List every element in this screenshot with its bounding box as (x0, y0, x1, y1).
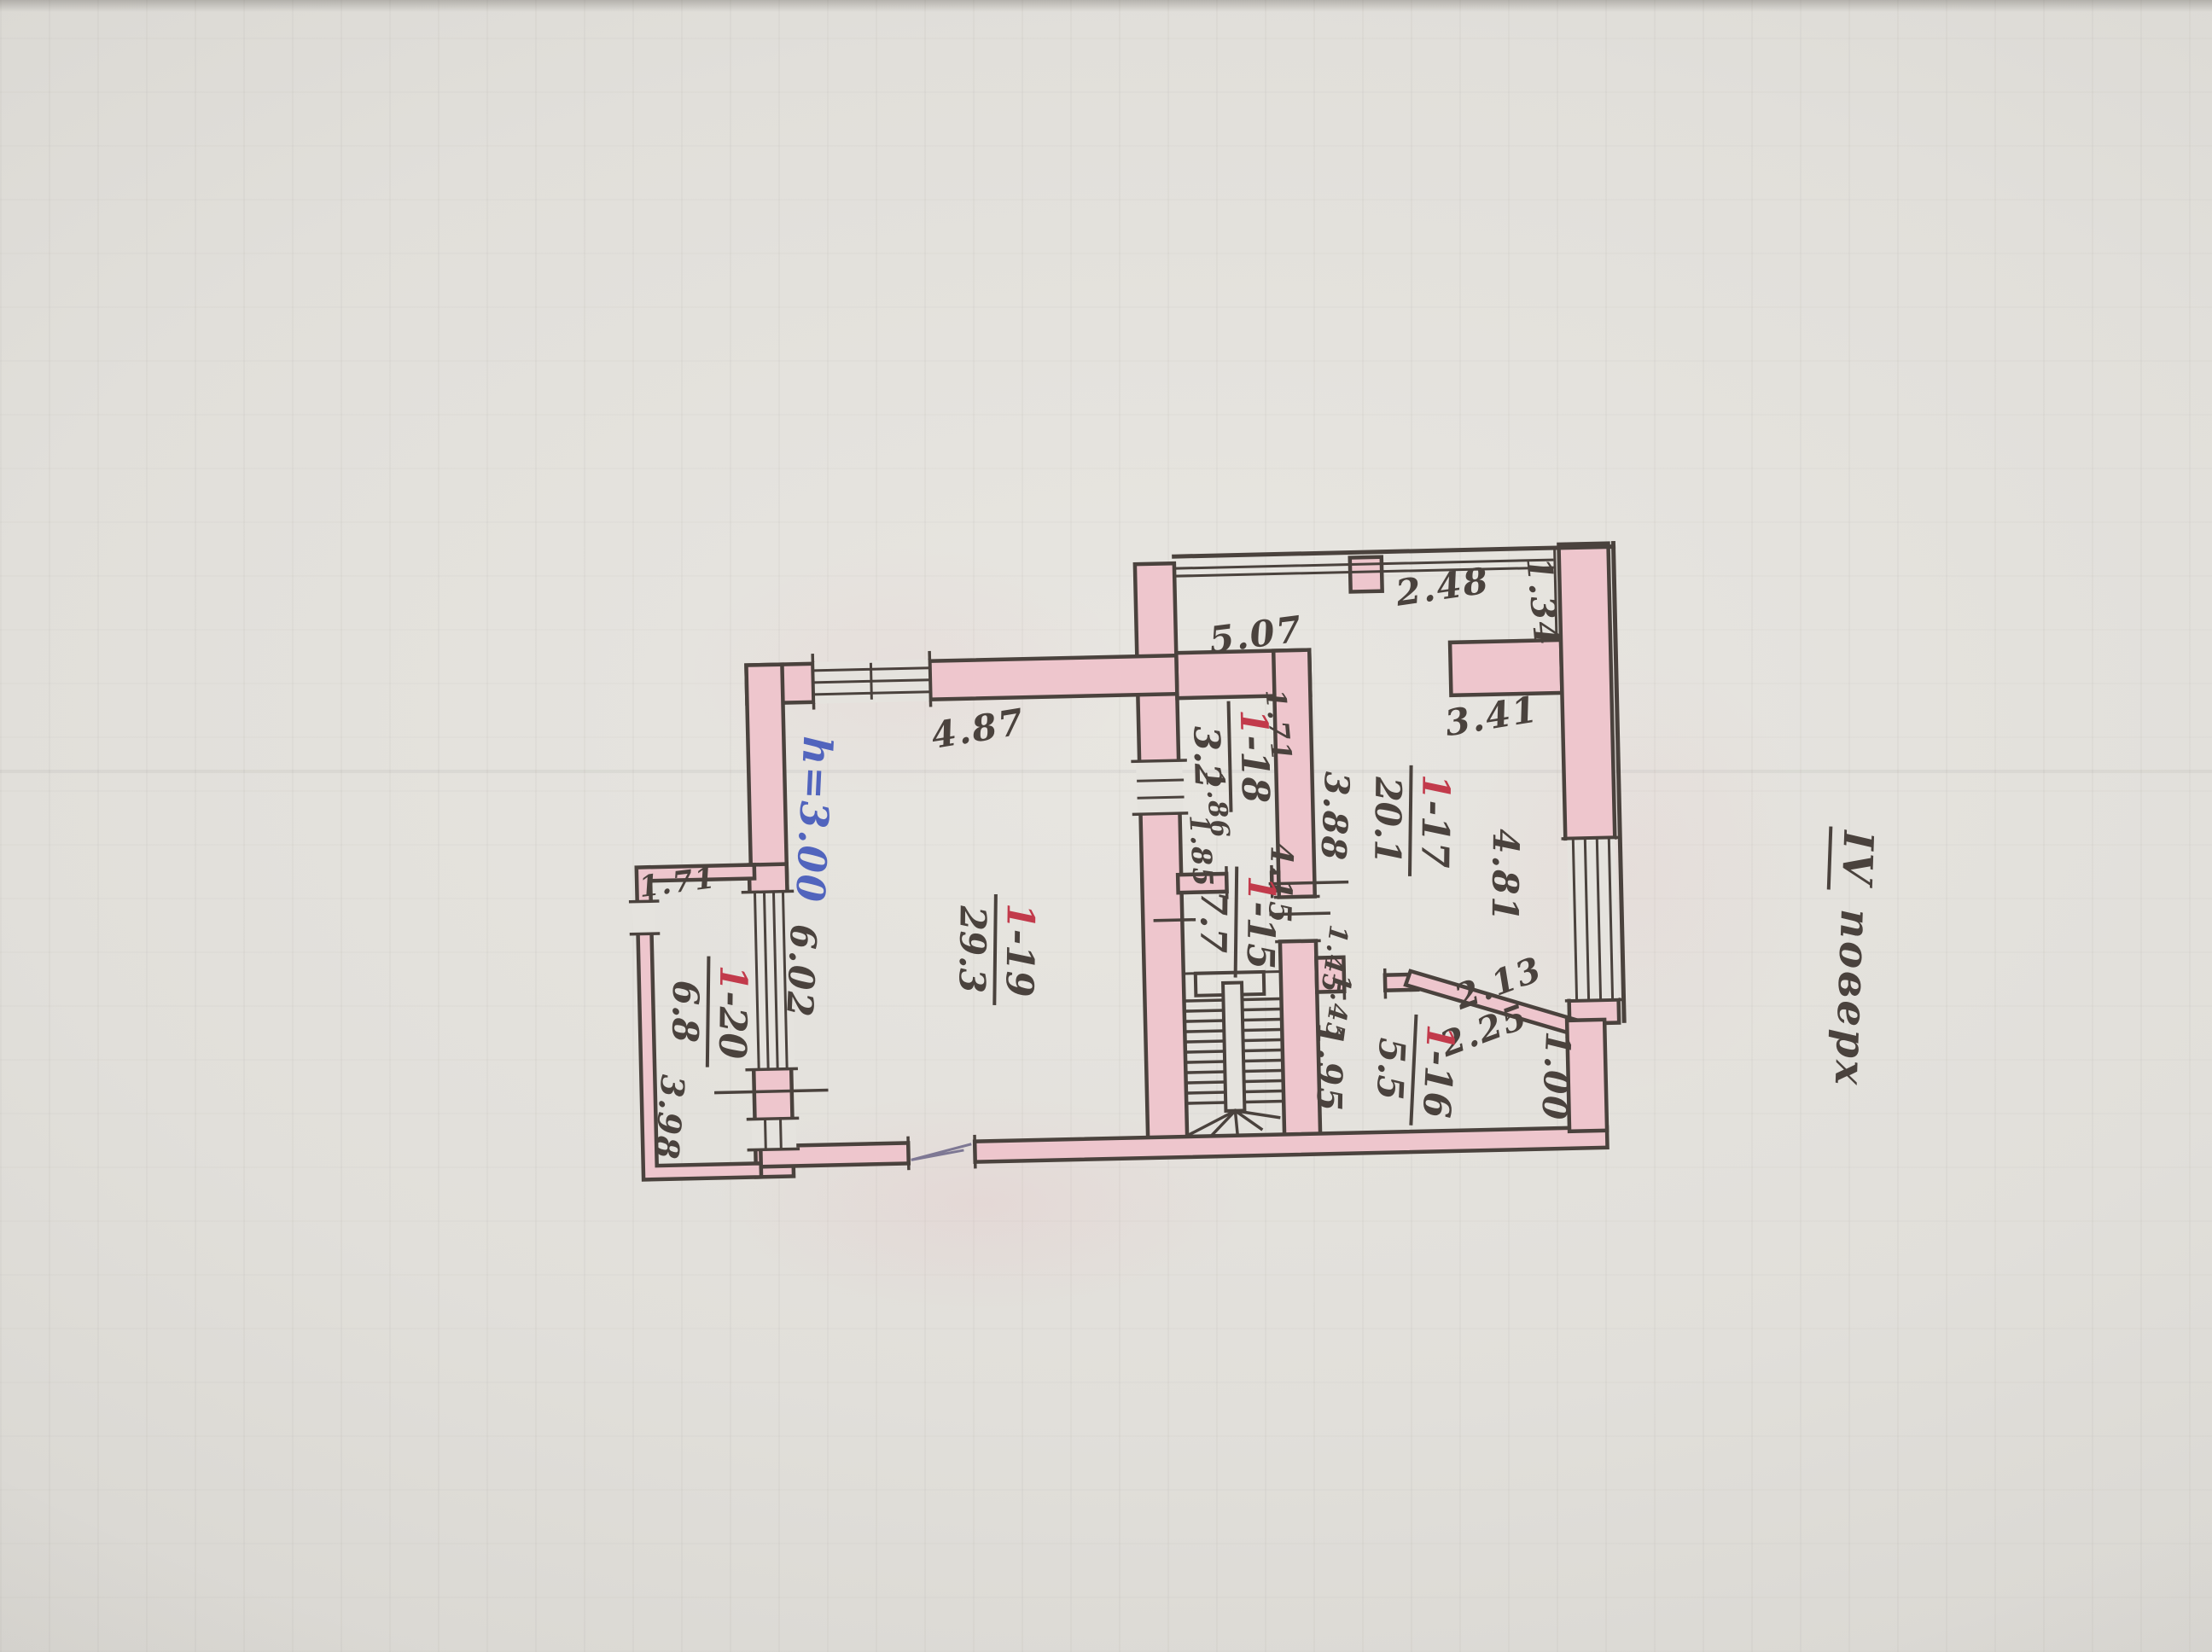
room-area: 5.5 (1370, 1013, 1414, 1126)
room-label-1-16: 1-165.5 (1370, 1013, 1458, 1128)
dimension-label: 4.87 (928, 704, 1027, 754)
room-area: 29.3 (953, 893, 994, 1005)
plan-labels-layer: h=3.00 2.481.345.073.414.874.811.711.863… (0, 0, 2212, 1652)
room-area: 7.7 (1195, 866, 1236, 978)
dimension-label: 4.81 (1487, 829, 1523, 923)
room-number: 1-16 (1409, 1015, 1458, 1127)
dimension-label: 5.07 (1207, 611, 1305, 659)
room-label-1-17: 1-1720.1 (1369, 765, 1454, 876)
ceiling-height-note: h=3.00 (787, 736, 841, 905)
room-label-1-19: 1-1929.3 (953, 893, 1039, 1005)
dimension-label: 3.41 (1442, 691, 1541, 742)
room-area: 6.8 (667, 956, 707, 1067)
dimension-label: 1.34 (1521, 556, 1563, 649)
floor-caption: ІVповерх (1825, 827, 1883, 1089)
photo-of-floor-plan-document: h=3.00 2.481.345.073.414.874.811.711.863… (0, 0, 2212, 1652)
dimension-label: 3.98 (649, 1073, 689, 1161)
room-number: 1-19 (992, 894, 1039, 1006)
dimension-label: 6.02 (781, 923, 821, 1019)
dimension-label: 1.71 (637, 864, 718, 902)
room-label-1-20: 1-206.8 (667, 956, 752, 1067)
floor-word: поверх (1825, 908, 1879, 1088)
room-number: 1-15 (1234, 867, 1280, 979)
floor-number: ІV (1827, 826, 1883, 891)
dimension-label: 2.48 (1394, 562, 1492, 611)
dimension-label: 1.00 (1536, 1031, 1575, 1122)
dimension-label: 1.95 (1312, 1022, 1347, 1113)
room-label-1-15: 1-157.7 (1195, 866, 1280, 978)
room-area: 3.2 (1188, 701, 1230, 813)
room-number: 1-20 (706, 957, 752, 1068)
room-label-1-18: 1-183.2 (1188, 701, 1274, 813)
floor-plan-drawing: h=3.00 2.481.345.073.414.874.811.711.863… (0, 0, 2212, 1652)
room-area: 20.1 (1369, 765, 1410, 876)
dimension-label: 3.88 (1315, 771, 1353, 862)
room-number: 1-17 (1408, 765, 1454, 877)
room-number: 1-18 (1227, 701, 1274, 812)
